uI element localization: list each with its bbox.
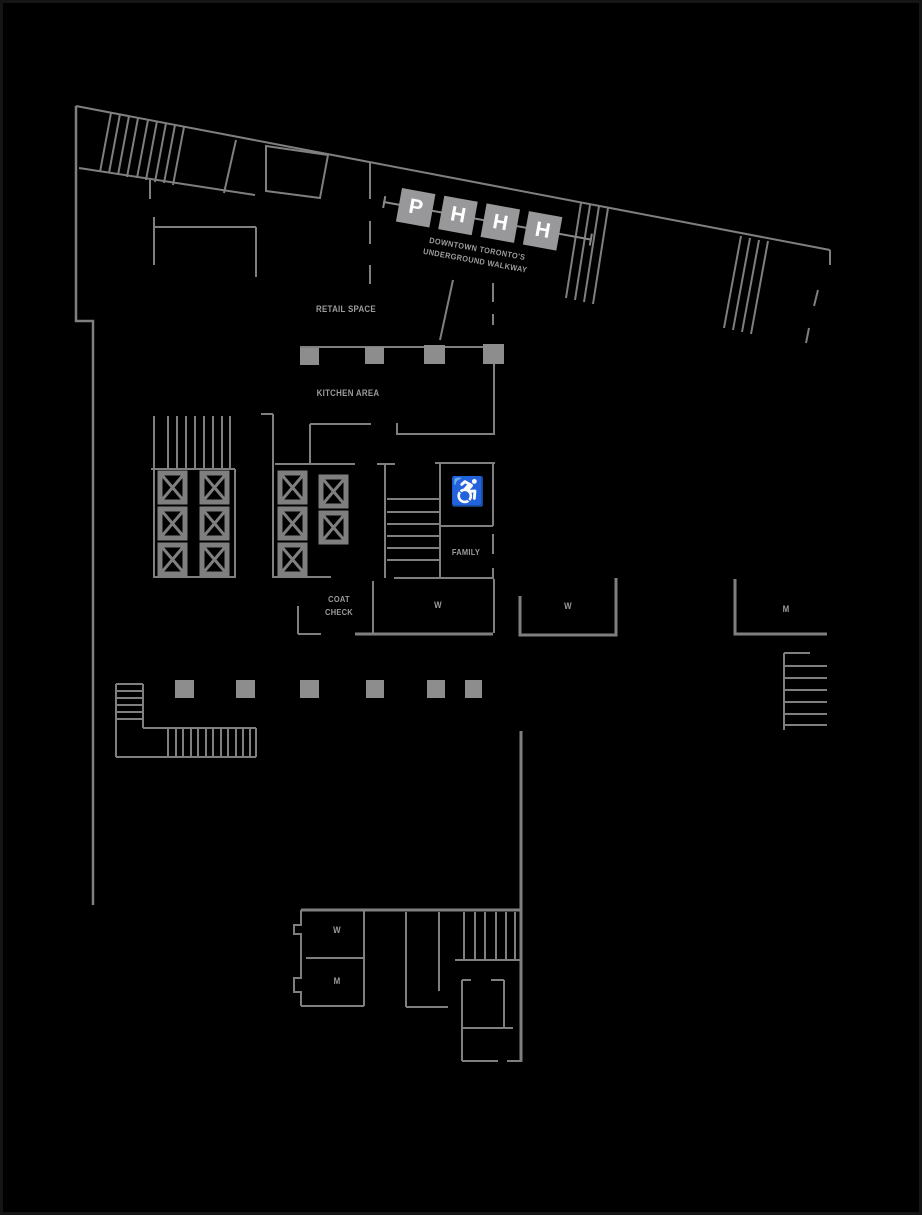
coat-check-label-line1: COAT [308,593,370,606]
washroom-w-east-label: W [559,600,577,613]
path-logo: P H H H DOWNTOWN TORONTO'S UNDERGROUND W… [389,188,569,287]
north-partitions [153,140,328,277]
washroom-w-main-label: W [429,599,447,612]
south-middle-room [406,912,448,1007]
washroom-m-south-label: M [328,975,346,988]
coat-check-label-line2: CHECK [308,606,370,619]
washroom-w-south-label: W [328,924,346,937]
path-logo-end-tick [589,234,593,246]
west-l-stairs-icon [116,684,256,757]
path-leader-line [440,280,453,340]
lobby-top-wall [275,463,495,464]
south-east-room [462,980,521,1061]
wheelchair-icon: ♿ [450,477,485,507]
coat-check-label: COAT CHECK [308,593,370,619]
elevator-bank-east [273,464,385,578]
south-stairs-icon [455,912,521,960]
column-row-central [175,680,482,698]
family-washroom-label: FAMILY [440,546,493,559]
central-stairs-icon [387,464,440,578]
floor-plan: P H H H DOWNTOWN TORONTO'S UNDERGROUND W… [0,0,922,1215]
path-letter-box: H [523,211,563,251]
north-west-stairs-icon [79,113,255,199]
retail-space-label: RETAIL SPACE [293,303,399,316]
path-letter-box: P [396,188,436,228]
path-letter-box: H [438,196,478,236]
elevator-bank-west [151,416,235,578]
kitchen-area-label: KITCHEN AREA [295,387,401,400]
north-east-stairs-icon [566,203,768,334]
path-letter-box: H [481,203,521,243]
washroom-m-east-label: M [777,603,795,616]
east-stairs-icon [784,653,827,730]
column-row-north [300,344,504,365]
